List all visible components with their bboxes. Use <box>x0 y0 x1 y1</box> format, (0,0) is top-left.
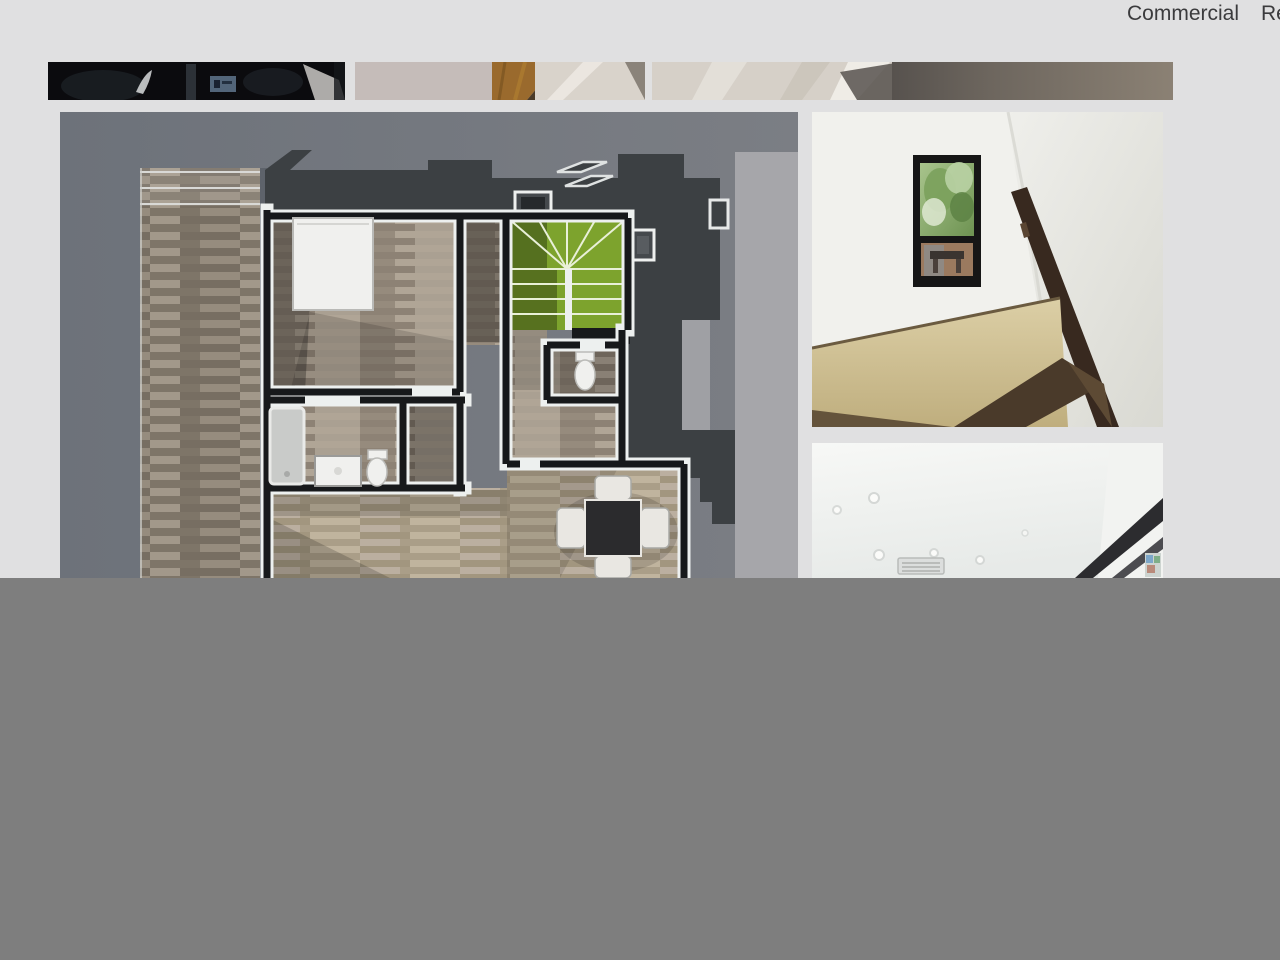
dining-table <box>585 500 641 556</box>
stairwell-art <box>812 112 1163 427</box>
gallery-thumbnail-1[interactable] <box>48 62 345 100</box>
gallery-thumbnail-3[interactable] <box>652 62 1173 100</box>
wc-toilet <box>575 352 595 390</box>
nav-link-commercial[interactable]: Commercial <box>1127 2 1239 26</box>
bathroom-vanity <box>315 456 361 486</box>
bathtub <box>270 408 304 484</box>
deck-terrace <box>140 168 267 578</box>
stair-window <box>913 155 981 287</box>
thumbnail-1-art <box>48 62 345 100</box>
thumbnail-2-art <box>355 62 645 100</box>
thumbnail-3-art <box>652 62 1173 100</box>
floor-plan-art <box>60 112 798 578</box>
bed <box>293 218 373 310</box>
gallery-thumbnail-2[interactable] <box>355 62 645 100</box>
stairwell-photo[interactable] <box>812 112 1163 427</box>
interior-ceiling-photo[interactable] <box>812 443 1163 578</box>
nav-link-residential[interactable]: Res <box>1261 2 1280 26</box>
ceiling-vent <box>898 558 944 574</box>
floor-plan-image[interactable] <box>60 112 798 578</box>
staircase <box>507 217 630 344</box>
gray-overlay <box>0 578 1280 960</box>
ceiling-art <box>812 443 1163 578</box>
top-nav: Commercial Res <box>1127 2 1280 26</box>
toilet <box>367 450 387 486</box>
